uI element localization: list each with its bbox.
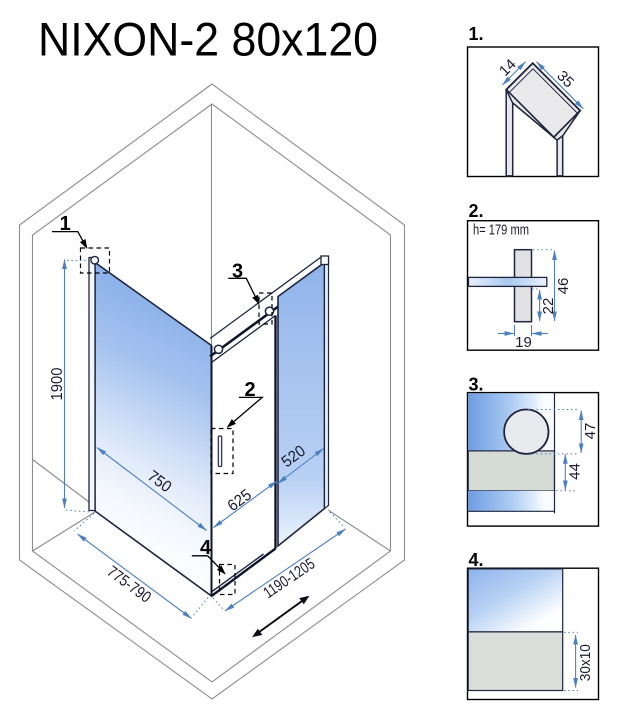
svg-text:1900: 1900 xyxy=(49,367,66,400)
svg-text:4.: 4. xyxy=(469,550,484,570)
svg-text:2.: 2. xyxy=(469,201,484,221)
svg-text:1.: 1. xyxy=(469,24,484,44)
svg-text:22: 22 xyxy=(540,298,557,315)
svg-text:NIXON-2 80x120: NIXON-2 80x120 xyxy=(38,14,378,67)
svg-text:h= 179 mm: h= 179 mm xyxy=(473,222,529,239)
svg-text:3.: 3. xyxy=(469,375,484,395)
svg-text:47: 47 xyxy=(582,423,599,440)
svg-text:44: 44 xyxy=(567,463,584,480)
svg-text:30x10: 30x10 xyxy=(577,644,594,681)
svg-text:19: 19 xyxy=(515,334,532,351)
svg-text:46: 46 xyxy=(555,278,572,295)
svg-text:3: 3 xyxy=(232,261,243,283)
